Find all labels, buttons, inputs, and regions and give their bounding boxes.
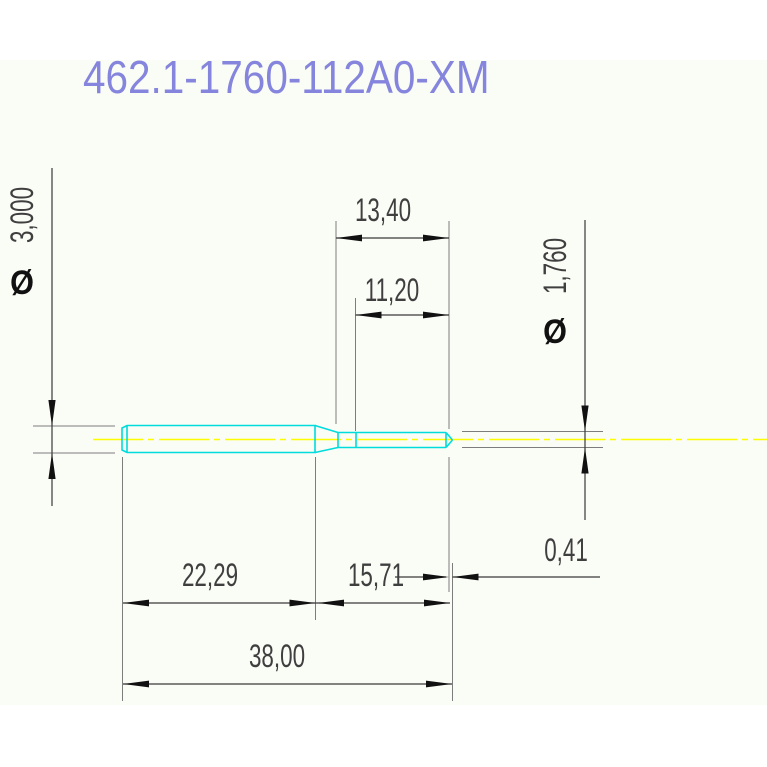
diameter-symbol-left: Ø <box>4 266 40 300</box>
extension-lines <box>33 221 603 701</box>
part-number-title: 462.1-1760-112A0-XM <box>83 54 490 100</box>
dimension-label-15-71: 15,71 <box>334 559 418 591</box>
dimension-label-38-00: 38,00 <box>235 640 319 672</box>
dimension-label-3-000: 3,000 <box>6 173 38 257</box>
diameter-symbol-right: Ø <box>537 315 573 349</box>
technical-drawing-canvas <box>0 0 767 767</box>
dimension-label-13-40: 13,40 <box>341 194 425 226</box>
dimension-arrows <box>48 235 588 688</box>
dimension-label-0-41: 0,41 <box>524 534 608 566</box>
dimension-label-1-760: 1,760 <box>539 224 571 308</box>
dimension-label-22-29: 22,29 <box>168 559 252 591</box>
dimension-label-11-20: 11,20 <box>350 274 434 306</box>
